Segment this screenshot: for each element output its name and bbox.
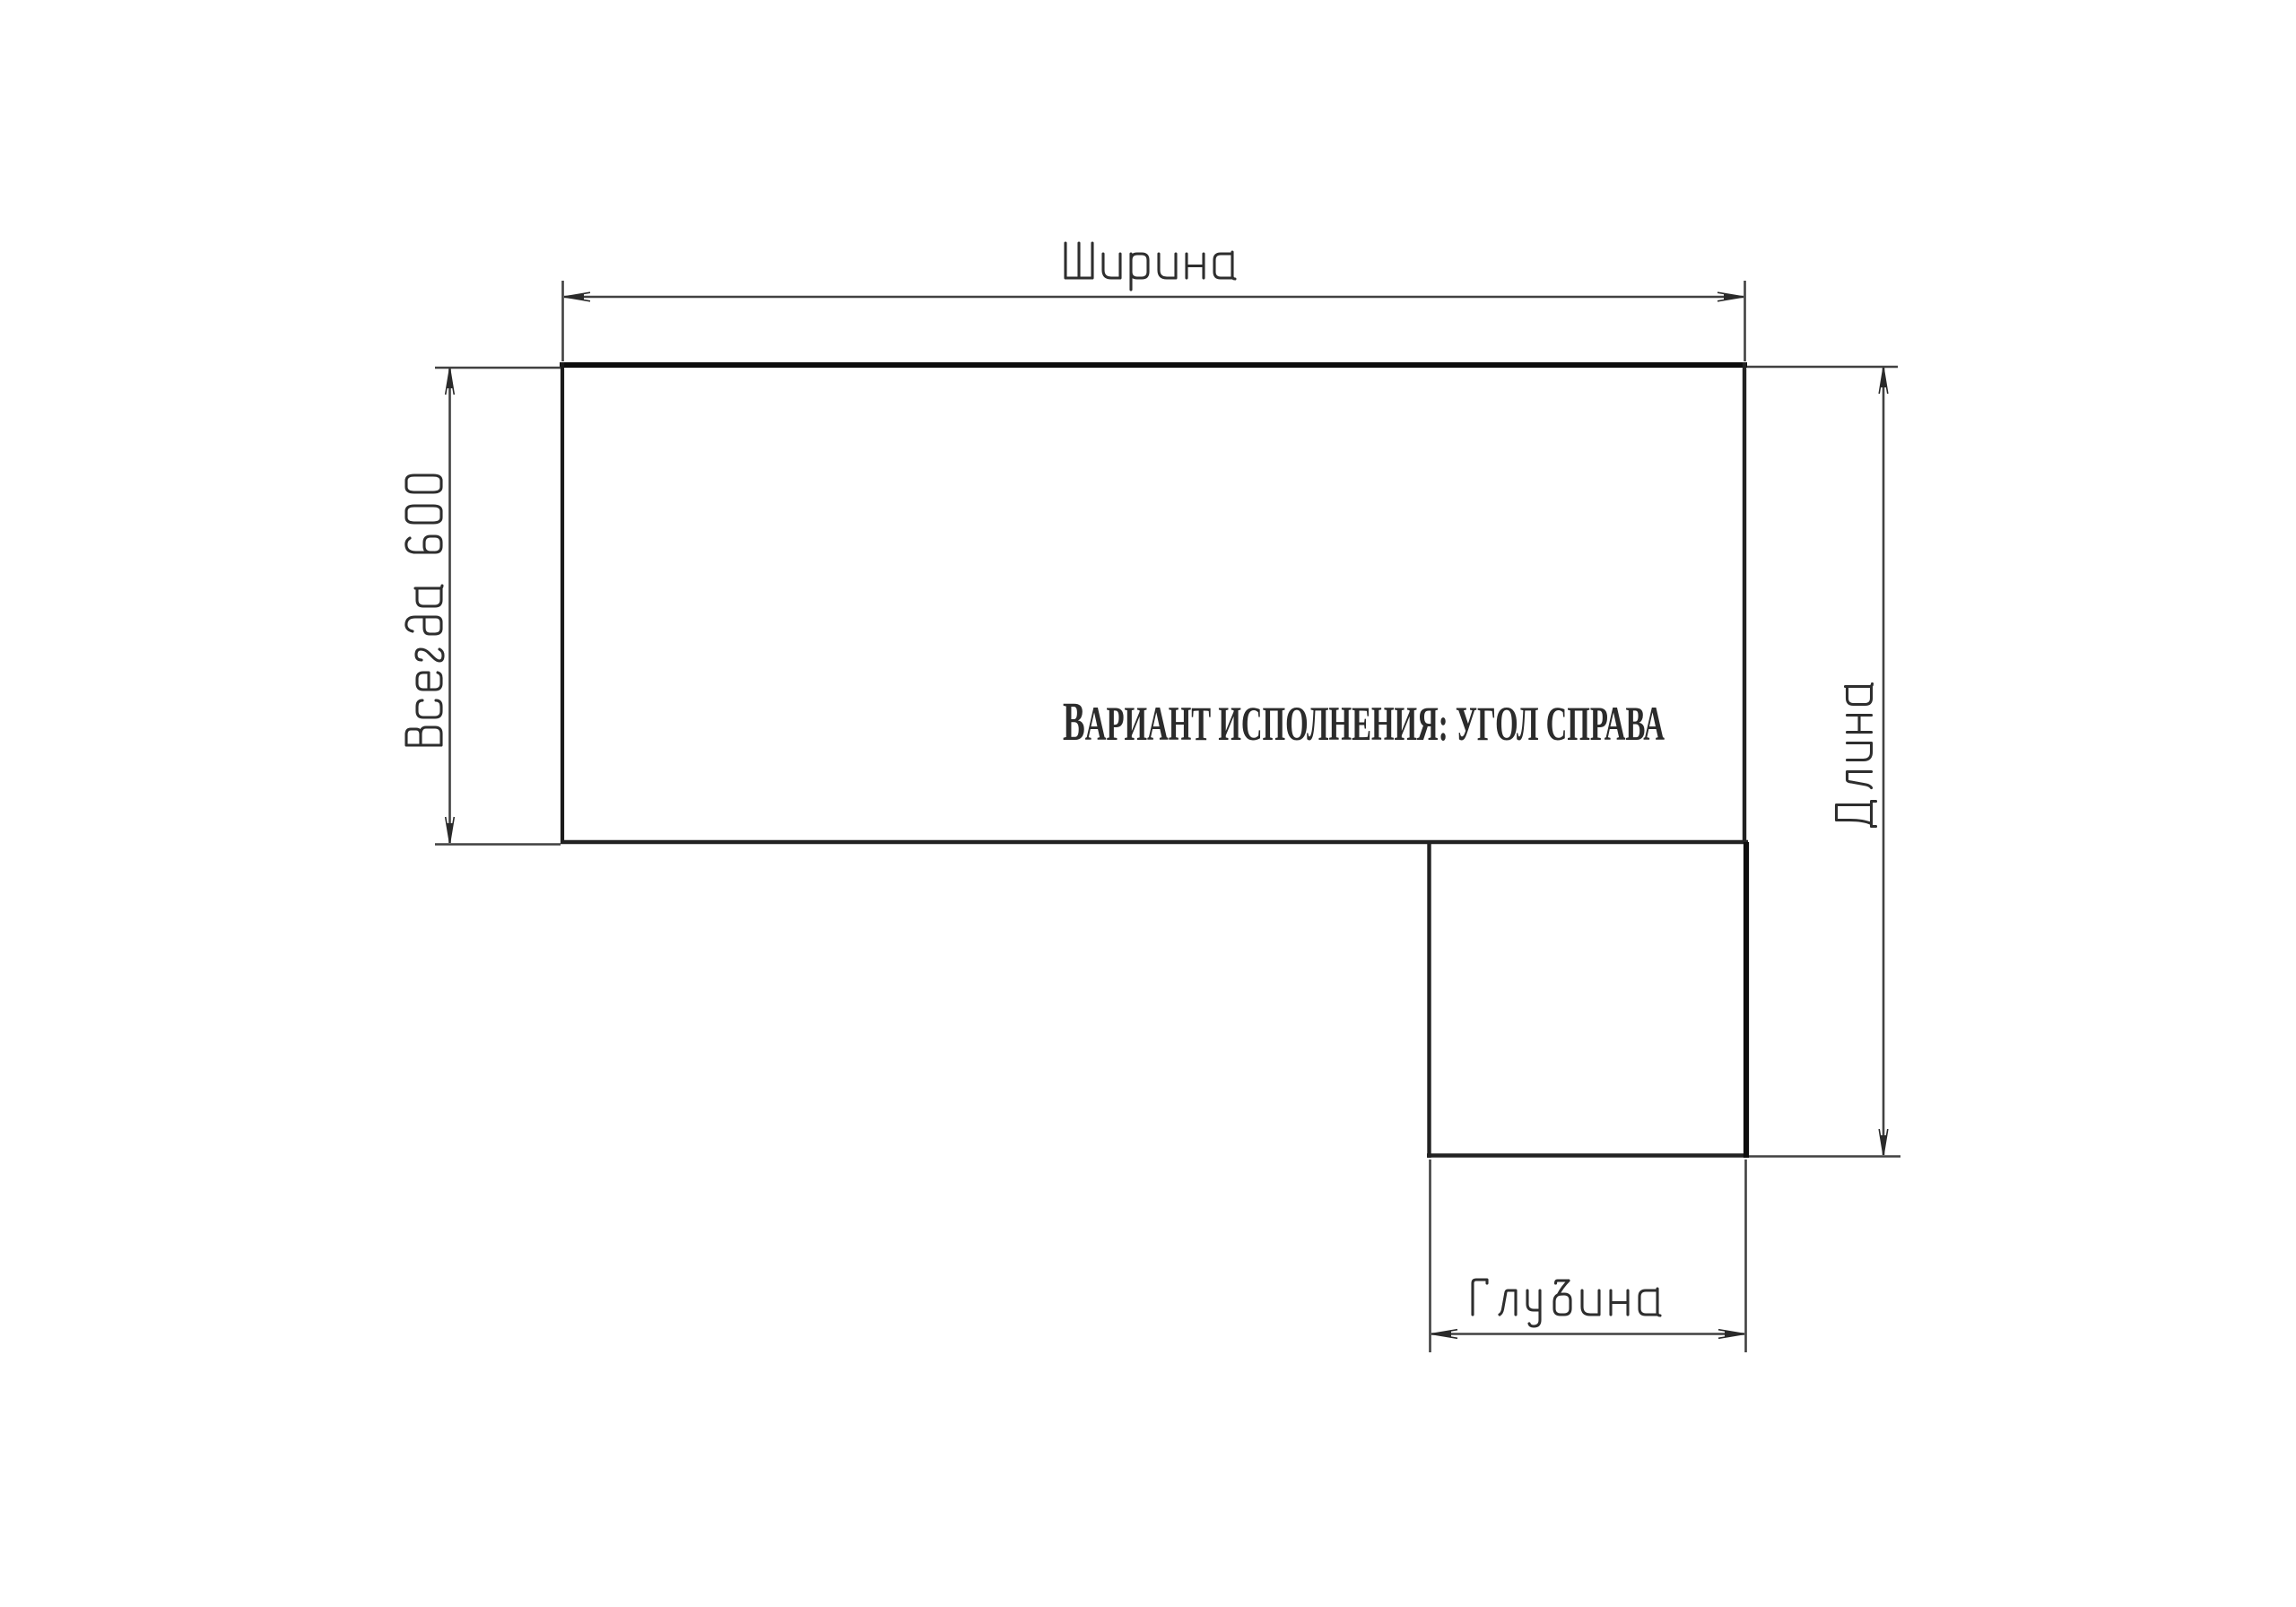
svg-text:ВАРИАНТ ИСПОЛНЕНИЯ: УГОЛ СПРАВ: ВАРИАНТ ИСПОЛНЕНИЯ: УГОЛ СПРАВА [1063,692,1665,752]
